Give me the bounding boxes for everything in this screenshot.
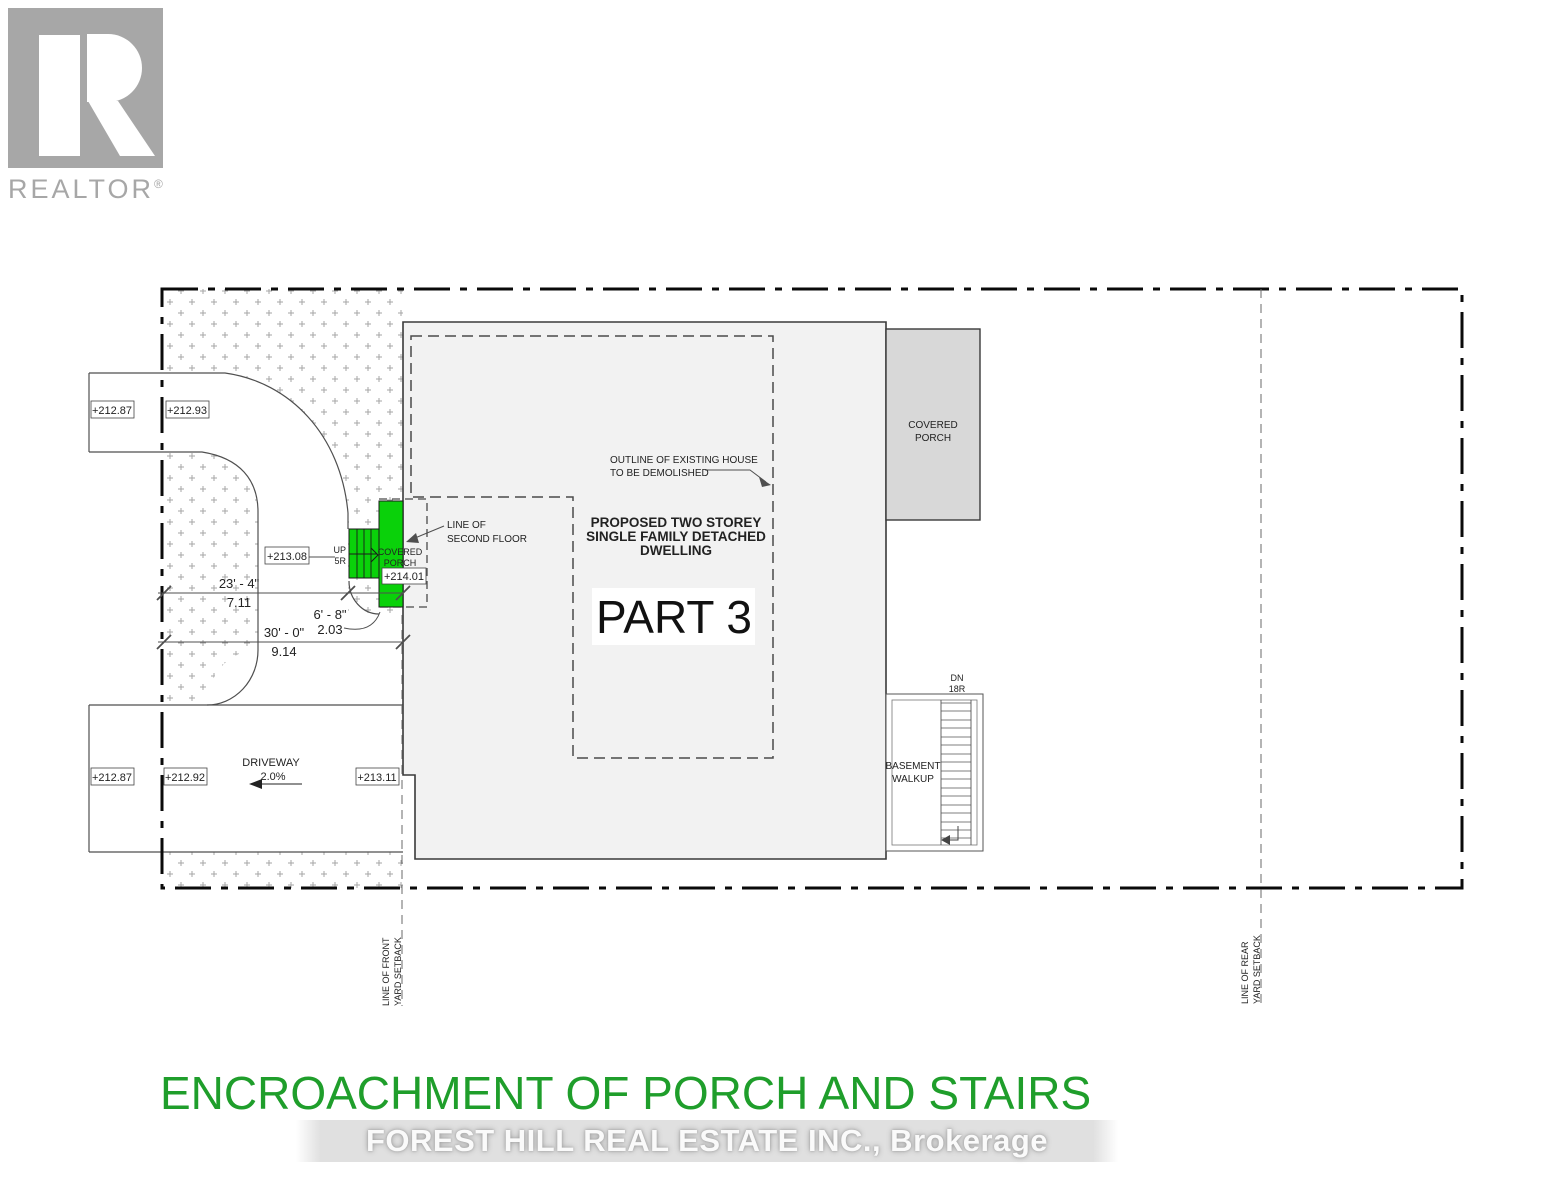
rear-setback-label-1: LINE OF REAR — [1240, 941, 1250, 1004]
front-setback-label-2: YARD SETBACK — [393, 937, 403, 1006]
elev-drive-house: +213.11 — [357, 772, 396, 784]
rear-porch-label-2: PORCH — [915, 433, 951, 444]
walkway-landing — [348, 618, 403, 705]
driveway-slope: 2.0% — [260, 771, 285, 783]
front-porch-label-1: COVERED — [378, 547, 423, 557]
part-label: PART 3 — [596, 591, 752, 643]
rear-porch-label-1: COVERED — [908, 420, 957, 431]
second-floor-note-2: SECOND FLOOR — [447, 534, 527, 545]
elev-drive-street: +212.87 — [92, 772, 132, 784]
up-risers-label: 5R — [334, 556, 346, 566]
elev-walk-street: +212.87 — [92, 405, 132, 417]
front-porch-label-2: PORCH — [384, 558, 417, 568]
demolish-note-2: TO BE DEMOLISHED — [610, 468, 709, 479]
drawing-title: ENCROACHMENT OF PORCH AND STAIRS — [160, 1066, 1260, 1120]
brokerage-watermark: FOREST HILL REAL ESTATE INC., Brokerage — [296, 1120, 1118, 1162]
elev-drive-inside: +212.92 — [165, 772, 205, 784]
site-plan-page: REALTOR® COVERED PORCH — [0, 0, 1553, 1200]
up-label: UP — [333, 545, 346, 555]
demolish-note-1: OUTLINE OF EXISTING HOUSE — [610, 455, 758, 466]
walkup-dn-label: DN — [951, 673, 964, 683]
dim2-metric: 9.14 — [271, 644, 296, 659]
proposed-note-1: PROPOSED TWO STOREY — [591, 515, 762, 530]
dim1-imperial: 23' - 4" — [219, 576, 260, 591]
proposed-note-3: DWELLING — [640, 543, 712, 558]
dim2-imperial: 30' - 0" — [264, 625, 305, 640]
basement-label-1: BASEMENT — [885, 761, 940, 772]
dim1-metric: 7.11 — [227, 595, 251, 610]
walkup-risers-label: 18R — [949, 684, 966, 694]
site-plan-drawing: COVERED PORCH DN 18R BASEMENT WALKUP UP — [0, 0, 1553, 1200]
elev-walk-inside: +212.93 — [167, 405, 207, 417]
driveway-label: DRIVEWAY — [242, 757, 300, 769]
rear-setback-label-2: YARD SETBACK — [1252, 935, 1262, 1004]
basement-label-2: WALKUP — [892, 774, 934, 785]
elev-porch-top: +214.01 — [384, 571, 424, 583]
basement-walkup: DN 18R BASEMENT WALKUP — [885, 673, 983, 851]
second-floor-note-1: LINE OF — [447, 520, 486, 531]
elev-stair-base: +213.08 — [267, 551, 307, 563]
dim3-imperial: 6' - 8" — [313, 607, 346, 622]
proposed-note-2: SINGLE FAMILY DETACHED — [586, 529, 766, 544]
front-setback-label-1: LINE OF FRONT — [381, 937, 391, 1006]
dim3-metric: 2.03 — [317, 622, 342, 637]
